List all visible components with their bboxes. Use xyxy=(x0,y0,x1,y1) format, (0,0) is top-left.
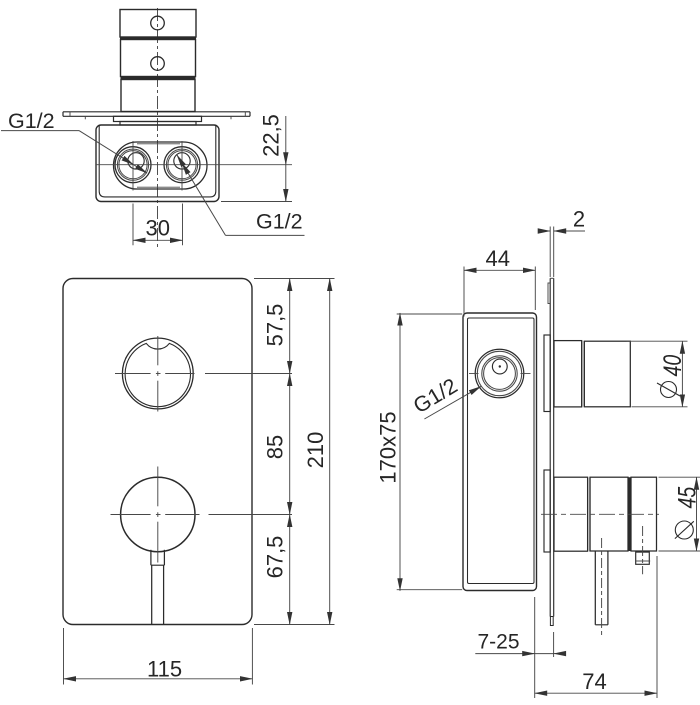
svg-text:57,5: 57,5 xyxy=(263,304,288,347)
svg-text:170x75: 170x75 xyxy=(376,411,401,483)
svg-text:G1/2: G1/2 xyxy=(8,109,55,133)
svg-text:74: 74 xyxy=(582,669,606,694)
svg-text:2: 2 xyxy=(573,207,585,232)
svg-text:85: 85 xyxy=(263,435,288,459)
svg-text:44: 44 xyxy=(485,246,509,271)
svg-text:7-25: 7-25 xyxy=(477,631,519,654)
svg-text:G1/2: G1/2 xyxy=(409,374,461,419)
svg-text:210: 210 xyxy=(303,432,328,469)
svg-text:45: 45 xyxy=(673,486,700,508)
svg-text:30: 30 xyxy=(146,215,170,240)
svg-text:22,5: 22,5 xyxy=(259,114,284,157)
svg-text:40: 40 xyxy=(659,354,687,376)
svg-text:115: 115 xyxy=(147,656,182,681)
svg-text:G1/2: G1/2 xyxy=(256,210,303,234)
svg-text:67,5: 67,5 xyxy=(263,536,288,579)
